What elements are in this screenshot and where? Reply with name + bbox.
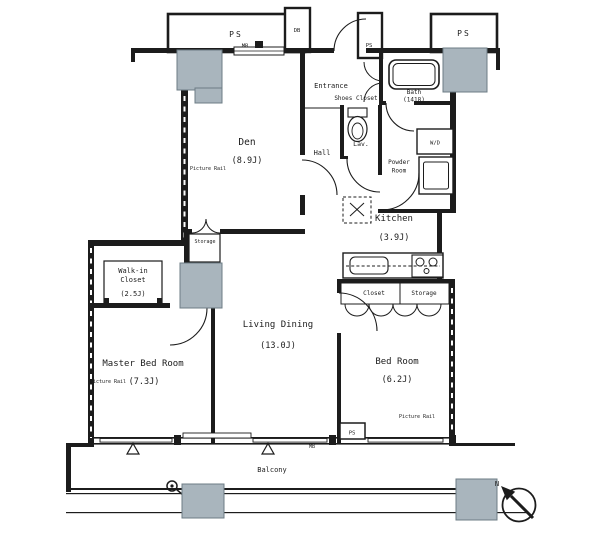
washer-dryer-label: W/D [430,141,440,147]
pillar-top-left-step [195,88,222,103]
walk-in-closet-door-tick-left [104,298,109,304]
balcony-label: Balcony [257,466,287,474]
closet-door-scallops [345,304,441,316]
pipe-space-label-bottom: PS [349,431,356,437]
balcony-faucet-dot [170,484,173,487]
wall-stub-left [131,48,135,62]
walk-in-closet-label-line2: Closet [120,276,145,284]
balcony-rail-line [66,488,456,490]
bedroom-picture-rail-label: Picture Rail [399,414,435,420]
window-post-corner [449,435,456,446]
wall-bath-south-left [379,101,386,105]
bathtub [389,60,439,89]
shoes-closet-label: Shoes Closet [334,95,378,102]
bedroom-door-arc [339,293,377,331]
bedroom-closet-label: Closet [363,290,385,297]
window-post-left [174,435,181,445]
pipe-space-label-middle: PS [366,43,373,49]
compass-needle-shaft [511,496,533,518]
powder-room-door-arc [382,173,419,210]
living-sliding-door-sash-b [253,439,327,443]
wall-bath-west [379,53,383,105]
entrance-label: Entrance [314,82,348,90]
wall-den-east-lower [300,195,305,215]
wall-step-west [88,240,188,246]
den-picture-rail-label: Picture Rail [190,166,226,172]
den-storage-label: Storage [194,239,215,245]
den-door-arc [302,160,337,195]
compass: N [495,480,536,522]
bedroom-size-label: (6.2J) [382,375,413,385]
den-storage-door-arc-right [206,219,220,233]
walk-in-closet-label-line1: Walk-in [118,267,148,275]
powder-room-label-line1: Powder [388,159,410,166]
walk-in-closet-door-tick-right [157,298,162,304]
labels: PS DB PS PS MB Den (8.9J) Picture Rail E… [90,28,471,474]
floor-plan-drawing: N PS DB PS PS MB Den (8.9J) Picture Rail… [0,0,600,533]
bath-door-arc [386,103,414,131]
meter-symbol [255,41,263,48]
pipe-space-label-right: PS [457,29,471,38]
den-storage-door-arc-left [192,219,206,233]
fixtures [104,41,453,316]
meter-box-label-bottom: MB [309,444,315,450]
meter-box-label-top: MB [242,44,249,50]
master-bedroom-window-sash [100,439,172,443]
walk-in-closet-size-label: (2.5J) [120,290,145,298]
window-post-right [329,435,336,445]
wall-lav-west [340,105,344,159]
wall-bedroom-north [337,279,453,283]
pillar-bottom-right [456,479,497,520]
balcony-side-wall [66,443,71,492]
kitchen-label: Kitchen [375,214,413,224]
bath-size-label: (1418) [403,97,425,104]
kitchen-size-label: (3.9J) [379,233,410,243]
opening-triangle-marker-left [127,444,139,455]
balcony-rail-line-2 [66,493,456,494]
wall-powder-west [378,105,382,175]
master-bedroom-label: Master Bed Room [102,359,183,369]
pillar-top-right [443,48,487,92]
master-bedroom-door-arc [170,308,207,345]
living-dining-label: Living Dining [243,320,313,330]
wall-lav-south [340,156,348,159]
wall-den-east-upper [300,48,305,155]
lavatory-door-arc [347,159,380,192]
bedroom-storage-label: Storage [411,290,437,297]
powder-room-label-line2: Room [392,168,407,175]
bedroom-label: Bed Room [375,357,418,367]
wall-storage-west [184,234,189,264]
pillar-balcony [182,484,224,518]
living-sliding-door-sash-a [183,433,251,438]
wall-den-south-left [184,229,192,234]
wall-den-south-right [220,229,305,234]
den-label: Den [238,137,255,148]
living-dining-size-label: (13.0J) [260,341,296,351]
distribution-board-label: DB [294,28,301,34]
master-bedroom-picture-rail-label: Picture Rail [90,379,126,385]
lavatory-label: Lav. [353,140,369,148]
wall-stub-right [496,48,500,70]
wall-master-east [211,303,215,443]
wall-bedroom-west-upper [337,279,341,293]
opening-triangle-marker-right [262,444,274,455]
compass-north-label: N [495,480,499,488]
pillar-top-left [177,50,222,90]
pillar-middle-left [180,263,222,308]
toilet-tank [348,108,367,117]
den-size-label: (8.9J) [232,156,263,166]
master-bedroom-size-label: (7.3J) [129,377,160,387]
balcony-right-return [455,443,515,446]
window-rail-inner [94,443,455,445]
toilet-bowl [348,117,367,142]
bath-label: Bath [407,89,422,96]
bedroom-window-sash [368,439,443,443]
hall-label: Hall [314,149,331,157]
pipe-space-label-left: PS [229,30,243,39]
